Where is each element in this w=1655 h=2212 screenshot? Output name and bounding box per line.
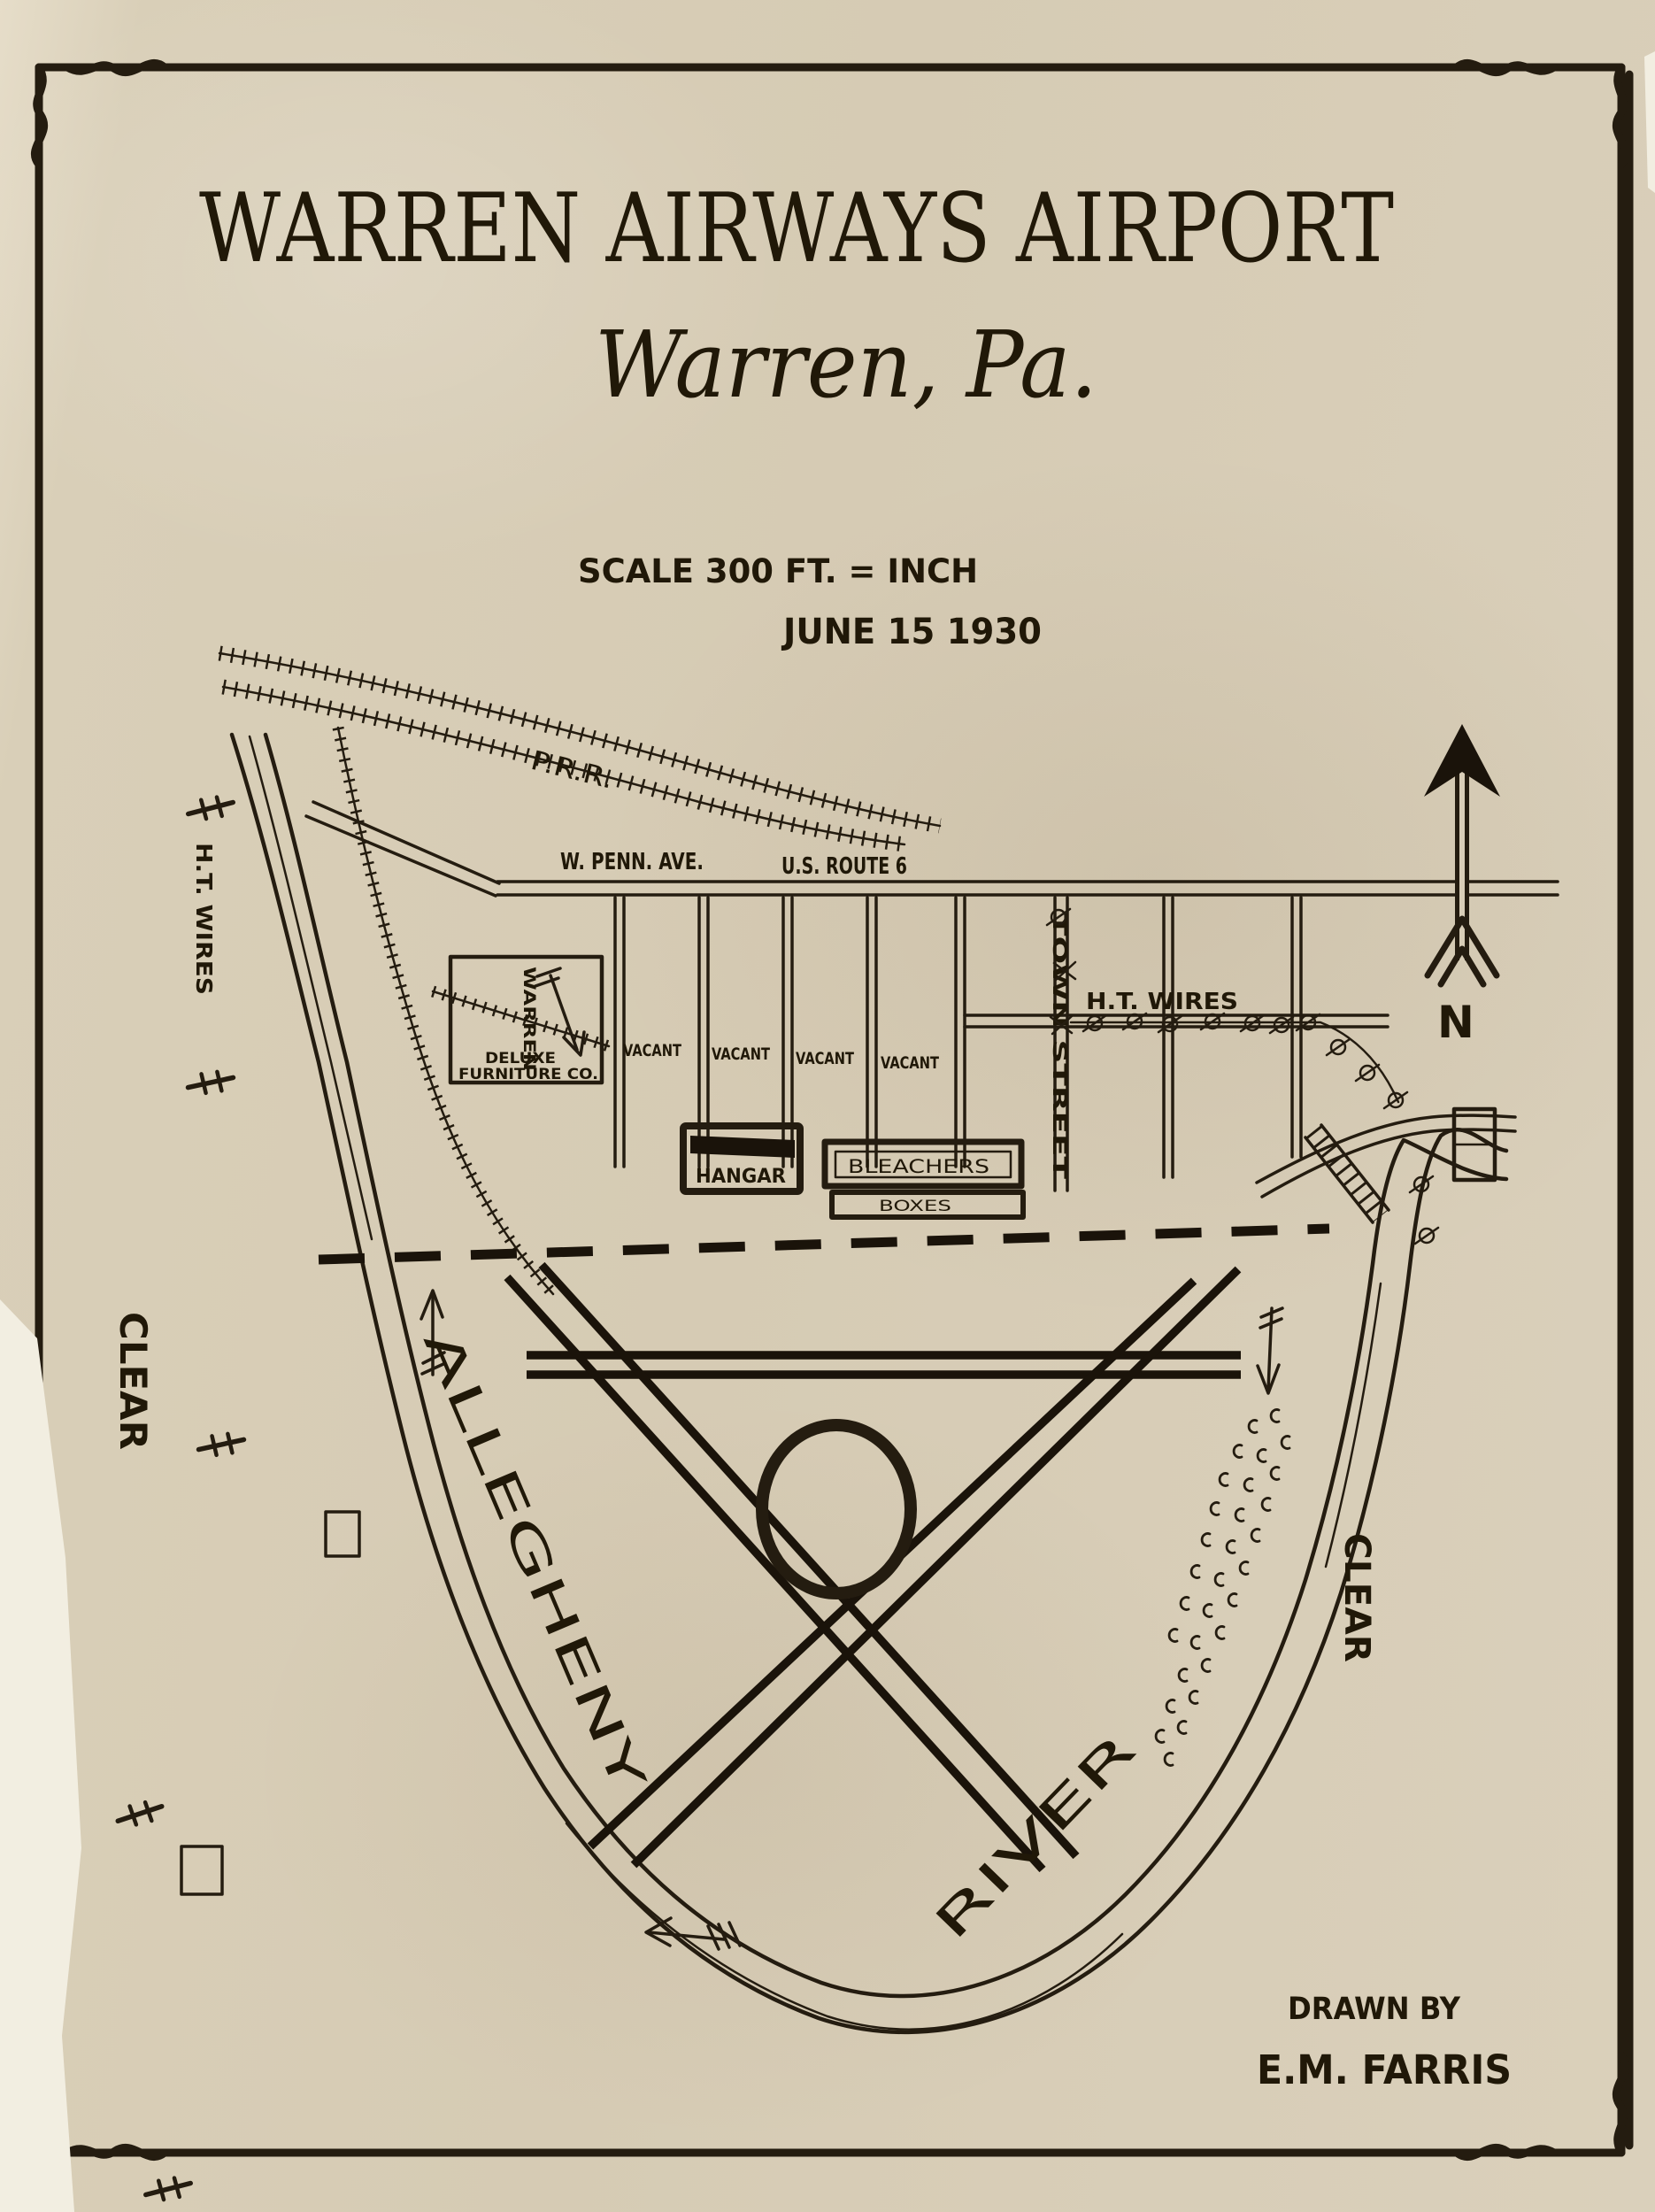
map-subtitle: Warren, Pa. <box>595 311 1097 419</box>
field-circle-marker <box>762 1425 911 1593</box>
ht-wires-right-label: H.T. WIRES <box>1086 989 1238 1015</box>
airport-map: P.R.R. <box>0 0 1655 2212</box>
route-label: U.S. ROUTE 6 <box>781 853 907 880</box>
ht-wires-left-label: H.T. WIRES <box>191 843 217 995</box>
survey-box <box>181 1846 222 1894</box>
bottom-left-pole <box>143 2176 192 2203</box>
bleachers-label: BLEACHERS <box>848 1156 989 1177</box>
furniture-block-line1: DELUXE <box>485 1050 556 1067</box>
north-label: N <box>1437 997 1474 1048</box>
river-name-upper: ALLEGHENY <box>412 1322 655 1800</box>
railroad-main-line <box>219 653 940 844</box>
field-boundary-dashed <box>319 1229 1329 1260</box>
hangar-label: HANGAR <box>696 1166 786 1188</box>
map-title: WARREN AIRWAYS AIRPORT <box>199 173 1394 284</box>
vacant-lot-label: VACANT <box>796 1049 854 1068</box>
north-arrow <box>1424 724 1500 984</box>
vacant-lot-label: VACANT <box>881 1053 939 1073</box>
river-name-lower: RIVER <box>924 1723 1147 1951</box>
torn-paper-edge-topright <box>1644 51 1655 193</box>
avenue-label: W. PENN. AVE. <box>560 849 704 875</box>
credit-line2: E.M. FARRIS <box>1257 2046 1512 2093</box>
allegheny-river <box>232 735 1506 2032</box>
scale-note: SCALE 300 FT. = INCH <box>578 552 978 590</box>
scrub-texture <box>1156 1410 1289 1766</box>
furniture-block-line2: FURNITURE CO. <box>458 1066 598 1083</box>
survey-box <box>326 1512 359 1556</box>
torn-paper-edge-left <box>0 1299 81 2212</box>
railroad-label: P.R.R. <box>527 745 617 796</box>
ht-wires-line-right <box>1071 1014 1438 1244</box>
clear-right-label: CLEAR <box>1336 1533 1377 1662</box>
boxes-label: BOXES <box>879 1198 951 1215</box>
wind-arrow-right <box>1258 1308 1282 1393</box>
vacant-lot-label: VACANT <box>623 1041 681 1060</box>
vacant-lot-label: VACANT <box>712 1044 770 1064</box>
map-date: JUNE 15 1930 <box>781 612 1042 652</box>
town-street-label: TOWN STREET <box>1049 913 1070 1180</box>
credit-line1: DRAWN BY <box>1288 1992 1461 2027</box>
clear-left-label: CLEAR <box>112 1312 155 1450</box>
